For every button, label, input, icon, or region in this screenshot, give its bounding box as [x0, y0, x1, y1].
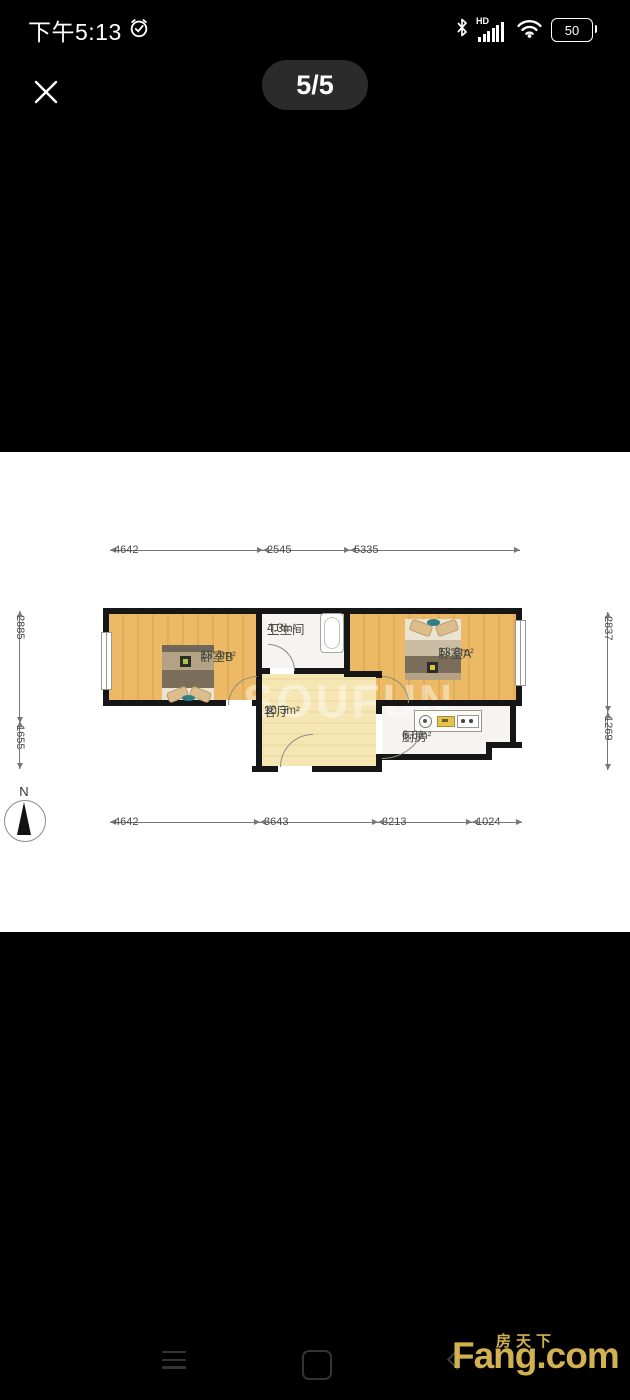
- bluetooth-icon: [455, 17, 469, 43]
- clock-time: 下午5:13: [28, 13, 122, 47]
- battery-icon: 50: [551, 18, 593, 42]
- dimension-right: 1269: [601, 712, 615, 770]
- wall-segment: [294, 668, 350, 674]
- home-icon[interactable]: [302, 1350, 332, 1380]
- wall-segment: [312, 766, 382, 772]
- status-icons: HD 50: [455, 15, 593, 43]
- compass-north-label: N: [10, 784, 38, 799]
- wall-segment: [510, 700, 516, 748]
- dimension-left: 1655: [13, 721, 27, 769]
- battery-level: 50: [565, 23, 579, 38]
- alarm-clock-icon: [128, 17, 150, 44]
- signal-bars-icon: HD: [478, 17, 508, 43]
- menu-icon[interactable]: [162, 1351, 186, 1371]
- dimension-bottom: 3643: [260, 815, 378, 829]
- fang-watermark: 房天下 Fang.com: [452, 1328, 630, 1382]
- dimension-bottom: 4642: [110, 815, 260, 829]
- wall-segment: [103, 608, 522, 614]
- wifi-icon: [517, 18, 542, 43]
- status-bar: 下午5:13 HD 50: [0, 0, 630, 56]
- wall-segment: [486, 742, 492, 760]
- dimension-bottom: 1024: [472, 815, 522, 829]
- floor-plan-image[interactable]: SOUFUN: [0, 452, 630, 932]
- dimension-bottom: 3213: [378, 815, 472, 829]
- window: [101, 632, 112, 690]
- image-counter-pill: 5/5: [262, 60, 368, 110]
- watermark-en-label: Fang.com: [452, 1334, 619, 1378]
- wall-segment: [344, 608, 350, 674]
- bathtub: [320, 613, 344, 653]
- dimension-top: 4642: [110, 543, 263, 557]
- close-icon: [30, 95, 62, 112]
- image-counter: 5/5: [296, 70, 334, 101]
- window: [515, 620, 526, 686]
- compass-needle: [17, 802, 31, 835]
- dimension-top: 2545: [263, 543, 350, 557]
- dimension-left: 2885: [13, 611, 27, 723]
- dimension-top: 5335: [350, 543, 520, 557]
- close-button[interactable]: [30, 76, 62, 108]
- dimension-right: 2837: [601, 612, 615, 712]
